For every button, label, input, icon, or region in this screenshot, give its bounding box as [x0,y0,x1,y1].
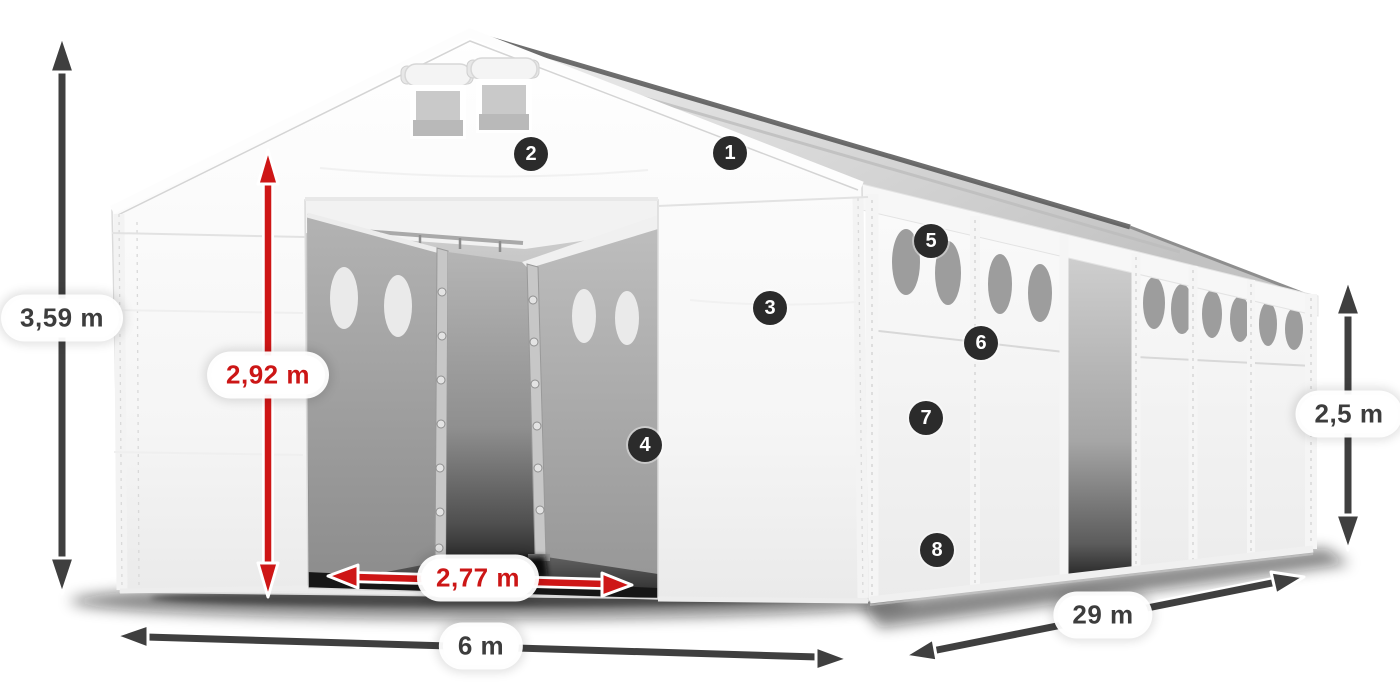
callout-badge-6: 6 [964,326,998,360]
callout-badge-8: 8 [920,533,954,567]
side-entrance-opening [1068,236,1132,578]
callout-badge-4: 4 [628,428,662,462]
vent-roll [405,64,471,86]
dimension-label-entrance-width: 2,77 m [421,559,535,598]
callout-badge-7: 7 [909,401,943,435]
callout-badge-5: 5 [914,224,948,258]
dimension-label-width: 6 m [443,627,519,666]
interior-passage [446,252,536,572]
callout-badge-2: 2 [514,137,548,171]
dimension-label-inner-height: 2,92 m [211,356,325,395]
interior-panel-window [330,267,358,329]
tent-illustration [0,0,1400,700]
entrance-interior [305,200,658,600]
tent-diagram-stage: 3,59 m 2,92 m 2,77 m 6 m 29 m 2,5 m 1 2 … [0,0,1400,700]
callout-badge-3: 3 [753,291,787,325]
dimension-label-length: 29 m [1057,596,1148,635]
callout-badge-1: 1 [713,136,747,170]
interior-panel-window [384,275,412,337]
interior-right-panel [530,229,658,574]
interior-panel-window [615,291,639,345]
interior-frame-pole [435,248,448,575]
vent-roll [471,58,537,80]
dimension-label-side-height: 2,5 m [1300,395,1399,434]
interior-left-panel [307,214,440,587]
dimension-label-total-height: 3,59 m [5,299,119,338]
interior-panel-window [572,289,596,343]
